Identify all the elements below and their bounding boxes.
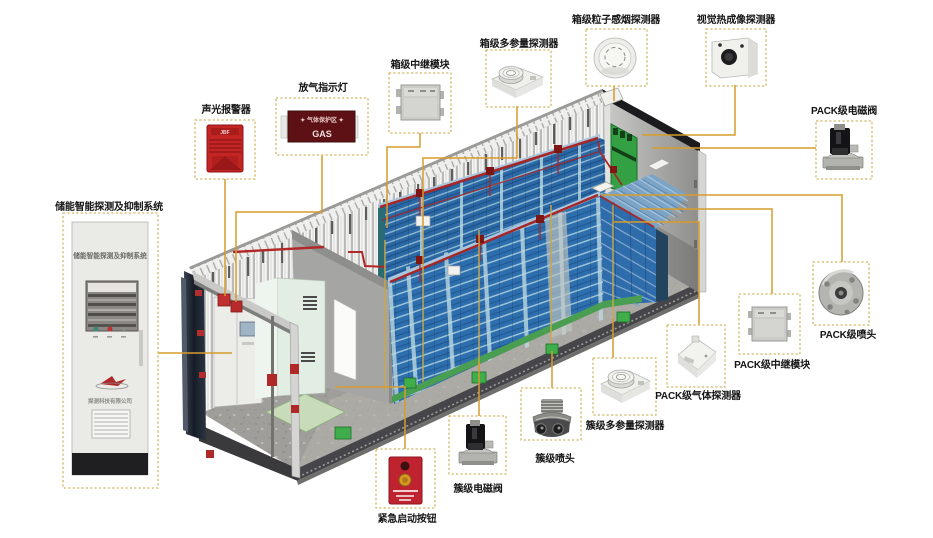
svg-text:簇级喷头: 簇级喷头 [534,452,574,465]
svg-text:簇级多参量探测器: 簇级多参量探测器 [585,419,666,432]
svg-text:放气指示灯: 放气指示灯 [298,81,348,94]
svg-text:箱级多参量探测器: 箱级多参量探测器 [480,37,560,50]
svg-text:视觉热成像探测器: 视觉热成像探测器 [697,13,777,26]
svg-text:GAS: GAS [312,129,332,139]
svg-text:紧急启动按钮: 紧急启动按钮 [378,512,437,525]
svg-text:PACK级电磁阀: PACK级电磁阀 [811,104,877,117]
svg-text:✦ 气体保护区 ✦: ✦ 气体保护区 ✦ [300,116,343,124]
svg-text:PACK级气体探测器: PACK级气体探测器 [655,389,742,402]
svg-text:PACK级中继模块: PACK级中继模块 [734,358,811,371]
svg-text:声光报警器: 声光报警器 [201,103,252,116]
svg-text:PACK级喷头: PACK级喷头 [820,328,876,341]
svg-text:箱级粒子感烟探测器: 箱级粒子感烟探测器 [572,13,661,26]
svg-text:储能智能探测及抑制系统: 储能智能探测及抑制系统 [72,251,147,260]
svg-text:JBF: JBF [220,130,229,136]
svg-text:箱级中继模块: 箱级中继模块 [391,58,451,71]
svg-text:储能智能探测及抑制系统: 储能智能探测及抑制系统 [54,200,163,213]
svg-text:簇级电磁阀: 簇级电磁阀 [453,482,503,495]
svg-text:探测科技有限公司: 探测科技有限公司 [88,397,132,405]
